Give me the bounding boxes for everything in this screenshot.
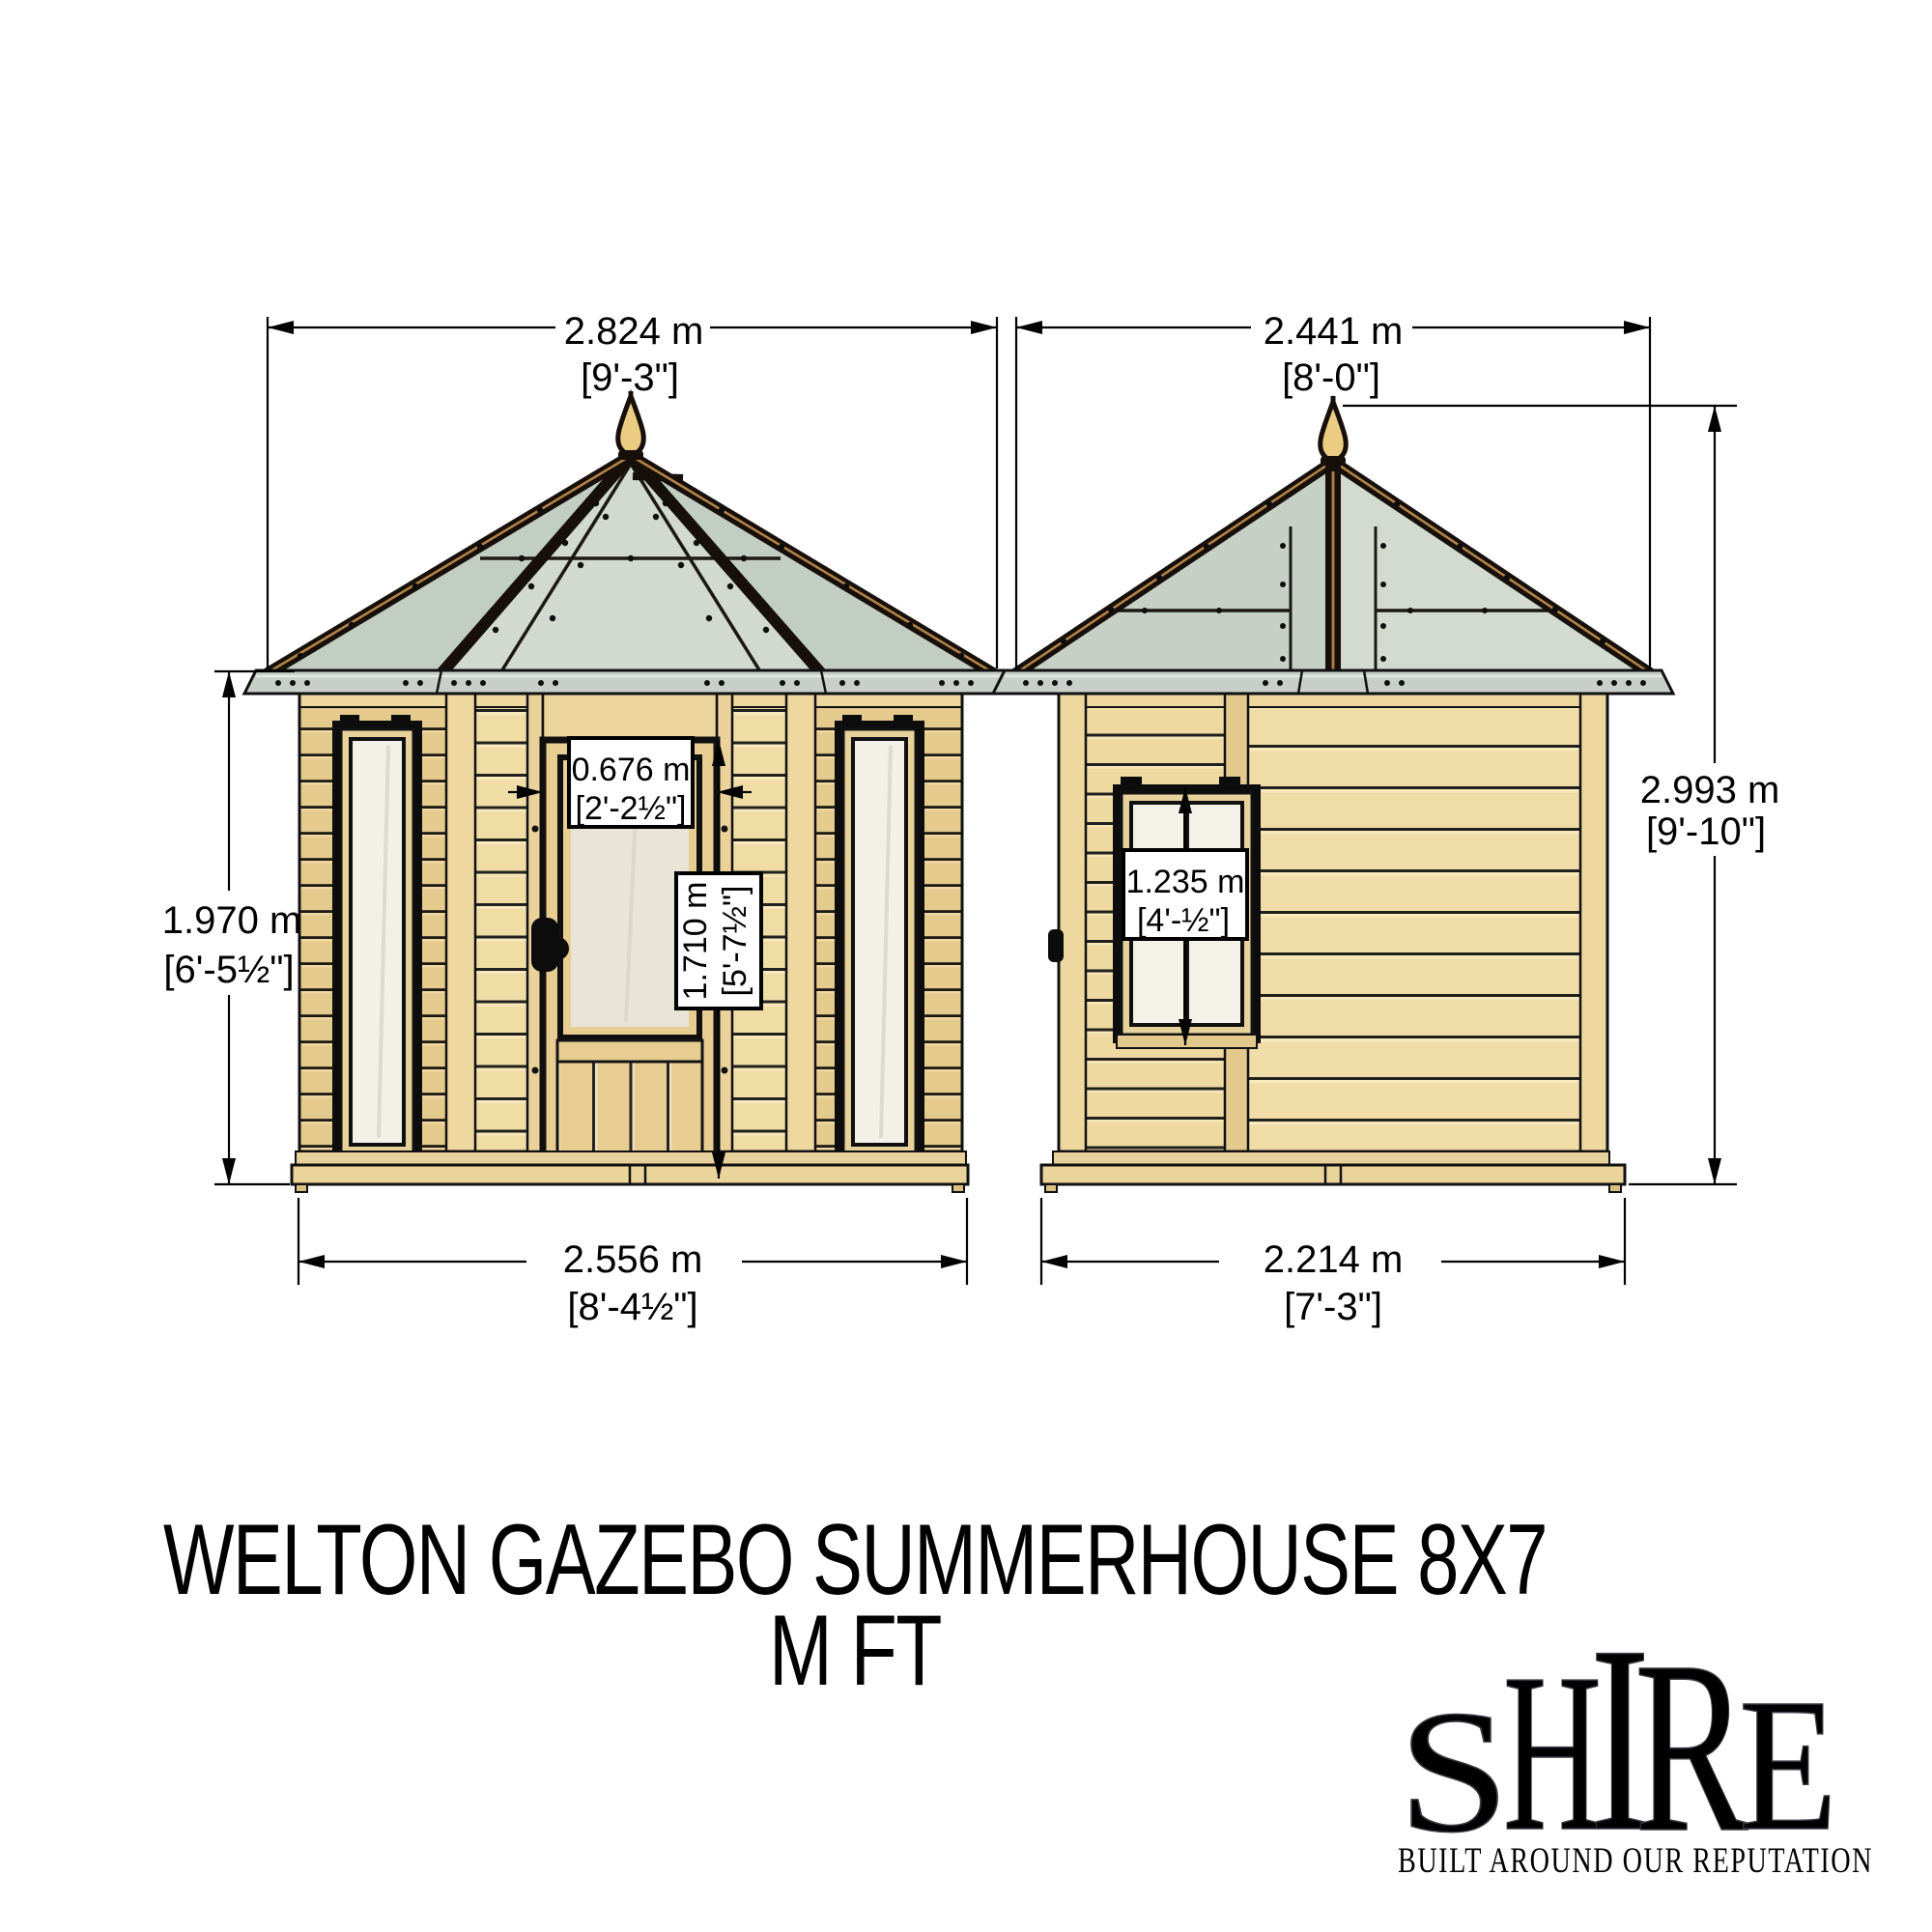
drawing-page: 2.824 m [9'-3"] 2.441 m [8'-0"] 1.970 m … [0, 0, 1932, 1932]
base-foot [952, 1184, 964, 1192]
side-eave-band [993, 670, 1673, 694]
side-roof [993, 396, 1673, 694]
window-glass [353, 741, 402, 1143]
side-right-corner-trim [1580, 694, 1607, 1151]
logo-letter-s: S [1398, 1675, 1510, 1869]
door-transom-panel [543, 694, 717, 740]
finial-collar [1321, 456, 1346, 466]
screw-dot [532, 826, 539, 833]
front-roof [244, 391, 1017, 694]
finial-flame-icon [618, 396, 644, 455]
finial-flame-icon [1321, 402, 1347, 461]
side-total-height-ft: [9'-10"] [1646, 810, 1766, 853]
door-latch-icon [546, 937, 569, 960]
base-rail [1053, 1151, 1609, 1165]
logo-letter-e: E [1739, 1659, 1837, 1870]
front-roof-width-ft: [9'-3"] [581, 356, 679, 399]
screw-dot [722, 826, 728, 833]
side-base-width-ft: [7'-3"] [1284, 1286, 1382, 1328]
door-bottom-planks [557, 1062, 702, 1164]
front-base [292, 1151, 968, 1192]
side-head-rail [1059, 694, 1607, 707]
door-mid-rail [557, 1040, 702, 1062]
door-height-m: 1.710 m [677, 882, 714, 1001]
side-base [1041, 1151, 1625, 1192]
side-roof-width-m: 2.441 m [1264, 310, 1404, 353]
side-base-width-m: 2.214 m [1264, 1238, 1404, 1281]
front-base-width-ft: [8'-4½"] [567, 1286, 697, 1328]
drawing-units: M FT [769, 1595, 941, 1707]
window-height-ft: [4'-½"] [1137, 902, 1230, 939]
finial-collar [618, 450, 643, 460]
front-roof-width-m: 2.824 m [564, 310, 704, 353]
side-left-corner-trim [1059, 694, 1086, 1151]
screw-dot [532, 1067, 539, 1074]
base-foot [296, 1184, 307, 1192]
title-block: WELTON GAZEBO SUMMERHOUSE 8X7 M FT [163, 1504, 1547, 1707]
screw-dot [722, 1067, 728, 1074]
front-left-corner-post [446, 694, 475, 1151]
base-rail [296, 1151, 966, 1165]
base-foot [1609, 1184, 1621, 1192]
front-finial [618, 391, 644, 460]
front-base-width-m: 2.556 m [563, 1238, 703, 1281]
front-eave-band [244, 670, 1017, 694]
side-right-clad [1248, 707, 1580, 1151]
logo-letter-h: H [1503, 1627, 1602, 1878]
window-glass [855, 741, 904, 1143]
logo-tagline: BUILT AROUND OUR REPUTATION [1398, 1841, 1873, 1881]
front-left-window [332, 715, 422, 1167]
base-board [1041, 1165, 1625, 1184]
front-wall-height-ft: [6'-5½"] [163, 949, 294, 991]
window-height-m: 1.235 m [1126, 864, 1245, 900]
side-door-handle-icon [1048, 929, 1064, 962]
door-width-ft: [2'-2½"] [576, 790, 687, 827]
technical-drawing: 2.824 m [9'-3"] 2.441 m [8'-0"] 1.970 m … [0, 0, 1932, 1932]
side-roof-width-ft: [8'-0"] [1282, 356, 1380, 399]
front-right-corner-post [786, 694, 815, 1151]
door-height-ft: [5'-7½"] [717, 886, 753, 997]
front-wall-height-m: 1.970 m [162, 899, 302, 942]
side-elevation [993, 396, 1673, 1192]
base-foot [1045, 1184, 1057, 1192]
side-total-height-m: 2.993 m [1640, 769, 1780, 811]
front-right-window [835, 715, 924, 1167]
door-width-m: 0.676 m [572, 752, 691, 788]
side-finial [1321, 396, 1347, 466]
shire-logo: S H I R E BUILT AROUND OUR REPUTATION [1398, 1590, 1873, 1887]
